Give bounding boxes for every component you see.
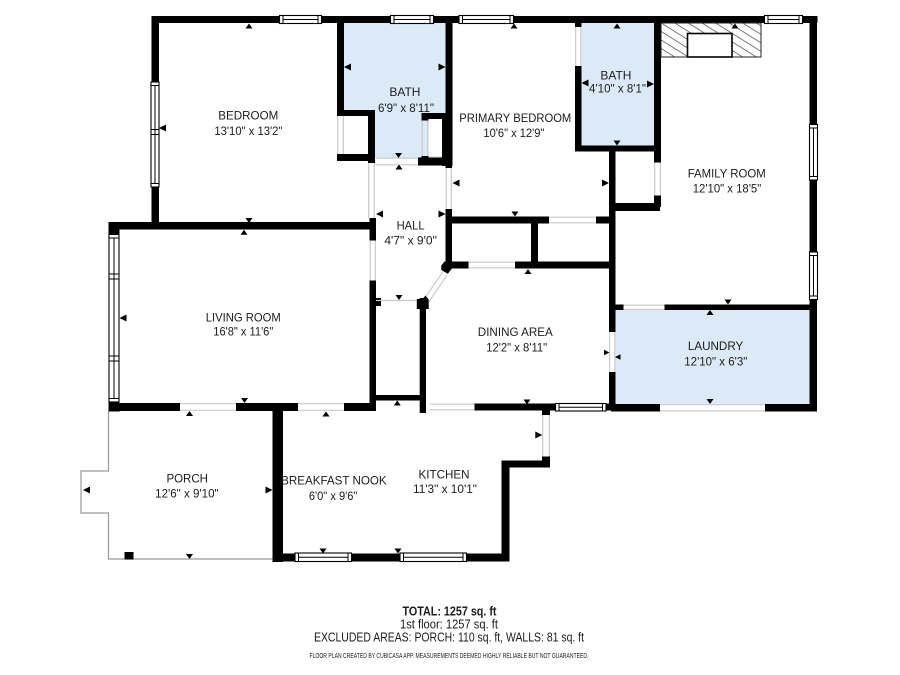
svg-text:10'6" x 12'9": 10'6" x 12'9" — [483, 127, 544, 140]
svg-text:11'3" x 10'1": 11'3" x 10'1" — [413, 483, 477, 496]
svg-text:BATH: BATH — [389, 86, 420, 99]
svg-text:LAUNDRY: LAUNDRY — [688, 340, 744, 353]
svg-text:12'6" x 9'10": 12'6" x 9'10" — [155, 488, 219, 501]
svg-text:12'10" x 6'3": 12'10" x 6'3" — [684, 355, 747, 368]
svg-text:TOTAL: 1257 sq. ft: TOTAL: 1257 sq. ft — [403, 605, 498, 619]
svg-text:16'8" x 11'6": 16'8" x 11'6" — [213, 326, 273, 339]
svg-text:1st floor: 1257 sq. ft: 1st floor: 1257 sq. ft — [400, 618, 498, 632]
svg-text:KITCHEN: KITCHEN — [419, 469, 470, 482]
svg-text:FLOOR PLAN CREATED BY CUBICASA: FLOOR PLAN CREATED BY CUBICASA APP. MEAS… — [310, 653, 589, 660]
svg-text:HALL: HALL — [397, 220, 426, 233]
svg-text:4'10" x 8'1": 4'10" x 8'1" — [589, 82, 646, 95]
svg-text:12'2" x 8'11": 12'2" x 8'11" — [486, 342, 547, 355]
svg-text:4'7" x 9'0": 4'7" x 9'0" — [384, 235, 437, 248]
svg-text:BREAKFAST NOOK: BREAKFAST NOOK — [281, 474, 387, 487]
svg-text:6'9" x 8'11": 6'9" x 8'11" — [378, 102, 434, 115]
svg-text:LIVING ROOM: LIVING ROOM — [206, 311, 281, 324]
svg-text:12'10" x 18'5": 12'10" x 18'5" — [693, 183, 762, 196]
svg-text:6'0" x 9'6": 6'0" x 9'6" — [309, 490, 358, 503]
svg-text:EXCLUDED AREAS: PORCH: 110 sq.: EXCLUDED AREAS: PORCH: 110 sq. ft, WALLS… — [314, 631, 584, 645]
svg-text:PORCH: PORCH — [166, 472, 208, 485]
svg-text:FAMILY ROOM: FAMILY ROOM — [688, 168, 766, 181]
svg-text:BATH: BATH — [600, 69, 631, 82]
svg-text:PRIMARY BEDROOM: PRIMARY BEDROOM — [459, 112, 571, 125]
svg-text:BEDROOM: BEDROOM — [218, 110, 278, 123]
svg-text:DINING AREA: DINING AREA — [478, 326, 553, 339]
svg-text:13'10" x 13'2": 13'10" x 13'2" — [214, 125, 282, 138]
